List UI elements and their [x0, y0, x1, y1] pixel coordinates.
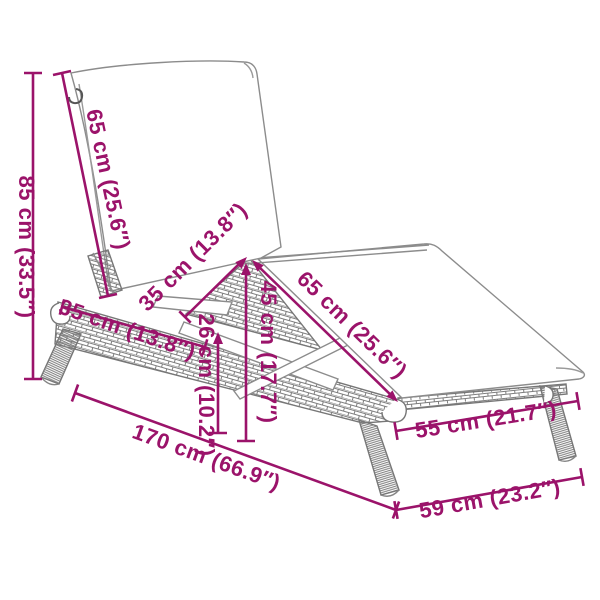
front-right-leg	[359, 420, 399, 496]
front-left-leg	[41, 329, 81, 385]
sun-lounger-diagram-canvas: 85 cm (33.5″) 65 cm (25.6″) 35 cm (13.8″…	[0, 0, 600, 600]
label-frame-height: 26 cm (10.2″)	[194, 313, 219, 456]
label-overall-width: 59 cm (23.2″)	[417, 474, 562, 523]
label-overall-height: 85 cm (33.5″)	[14, 175, 39, 318]
label-raised-seat-height: 45 cm (17.7″)	[256, 280, 281, 423]
product-dimension-diagram: 85 cm (33.5″) 65 cm (25.6″) 35 cm (13.8″…	[0, 0, 600, 600]
